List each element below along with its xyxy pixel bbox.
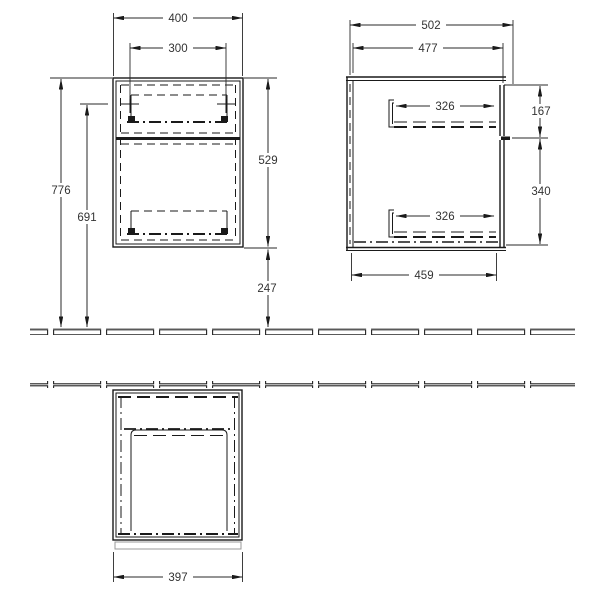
top-drawer-handle-front [121,95,235,122]
vanity-dimension-drawing: 400 300 776 691 529 247 [0,0,600,600]
dim-body-height-label: 529 [258,155,277,167]
side-view [346,77,513,251]
drawer-box-plan [124,429,232,531]
technical-drawing-page: 400 300 776 691 529 247 [0,0,600,600]
dim-total-height-label: 776 [51,185,70,197]
front-panel-plan [115,542,241,549]
bottom-drawer-handle-front [127,211,231,234]
dim-floor-clearance-label: 247 [257,283,276,295]
dim-top-drawer-depth-label: 326 [435,101,454,113]
dim-handle-height-label: 691 [77,212,96,224]
dim-handle-width-label: 300 [168,43,187,55]
top-view [113,390,242,549]
front-view-dimensions: 400 300 776 691 529 247 [47,11,283,327]
dim-bottom-front-height-label: 340 [531,186,550,198]
top-view-dimensions: 397 [114,552,243,584]
wall-hatch-line [30,381,575,388]
dim-bottom-drawer-depth-label: 326 [435,211,454,223]
dim-body-depth-label: 477 [418,43,437,55]
front-gap-tick [501,137,510,141]
front-view [113,78,243,247]
floor-hatch-line [30,328,575,335]
dim-front-width-label: 400 [168,13,187,25]
dim-total-depth-label: 502 [421,20,440,32]
dim-top-front-height-label: 167 [531,106,550,118]
dim-bottom-depth-label: 459 [414,270,433,282]
dim-front-panel-width-label: 397 [168,572,187,584]
